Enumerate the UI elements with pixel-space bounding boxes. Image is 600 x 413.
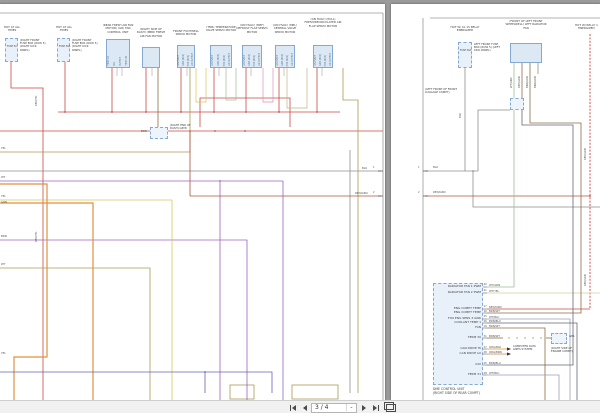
purple-wires (0, 181, 283, 400)
wiring-graphics-right (391, 4, 600, 400)
page-number-input[interactable]: 3 / 4 - (311, 403, 357, 413)
footwell-servo-box: LIN INPUT GND (BUS) POS (BUS) LIN OUTPUT (177, 45, 195, 68)
red-yel-label-2: RED/YEL (36, 224, 39, 242)
dme-wire-2: RED/GRN (489, 306, 502, 309)
dme-pin-8: 27 (484, 346, 487, 349)
red-grn-wire (190, 131, 381, 196)
gps-location-label: (RIGHT SIDE OF ENGINE COMPT) (551, 347, 581, 353)
fuse-box (458, 42, 472, 68)
loop-yellow (196, 68, 206, 102)
edge-label-grn: GRN (1, 201, 7, 204)
relay-hot-label: HOT W/ RELAY 1 ENERGIZED (573, 24, 600, 31)
next-page-icon (362, 405, 366, 411)
previous-page-icon (303, 405, 307, 411)
fan-pin-label-2: RED/GRN (519, 66, 522, 88)
dme-fn-3: ENG COMPT TEMP (435, 311, 481, 314)
dme-pin-5: 26 (484, 320, 487, 323)
orange-wires (0, 184, 93, 400)
dme-pin-2: 17 (484, 305, 487, 308)
edge-label-yel-1: YEL (1, 147, 6, 150)
yellow-wire (0, 200, 172, 400)
loop-pink (263, 68, 273, 102)
can-hi-arrow (507, 347, 511, 350)
relay-wire-label-2: RED/GRN (585, 266, 588, 286)
luggage-connector (510, 98, 524, 110)
defrost-flap-servo-label: (ON HVAC) (MEF) DEFROST FLAP SERVO MOTOR (236, 24, 268, 34)
red-yel-label-1: RED/YEL (36, 88, 39, 106)
loop-green (226, 68, 236, 100)
edge-label-brn: BRN (1, 235, 7, 238)
fuse-box-2 (57, 38, 70, 62)
dme-fn-8: CAN DRIVE HI (435, 347, 481, 350)
gry8-connector (150, 127, 168, 139)
dme-fn-7: TERM 30 (435, 336, 481, 339)
blk-wires (0, 150, 381, 393)
fuse1-location-label: (RIGHT FRONT FUSE BOX (ROW 5) (RIGHT KIC… (20, 39, 46, 52)
dme-wire-6: BRN/WT (489, 325, 500, 328)
edge-label-wt-2: WT (1, 263, 5, 266)
last-page-button[interactable] (371, 403, 381, 412)
dme-fn-0: RADIATOR FAN 1 PWM (435, 285, 481, 288)
dme-pin-3: 16 (484, 310, 487, 313)
relay-wire-label-1: RED/GRN (585, 140, 588, 160)
dme-wire-1: WT/YEL (489, 290, 499, 293)
can-lo-arrow (507, 352, 511, 355)
document-page-left: HOT AT ALL TIMES (RIGHT FRONT FUSE BOX (… (0, 4, 385, 400)
luggage-compt-label: (LEFT FRONT OF FRONT LUGGAGE COMPT) (425, 88, 457, 94)
brn-wire-label: BRN (141, 130, 147, 133)
dme-pin-6: 18 (484, 325, 487, 328)
dme-fn-10: 24V (435, 363, 481, 366)
dme-row-wires (487, 63, 600, 400)
dme-pin-4: 25 (484, 315, 487, 318)
dme-wire-0: WT/GRN (489, 284, 500, 287)
fuse-value: FUSE 30A (460, 50, 472, 53)
dme-wire-10: BRN/BLU (489, 362, 501, 365)
fuse-hot-label: HOT W/ KL 15 RELAY ENERGIZED (449, 26, 481, 33)
edge-label-yel-3: YEL (1, 352, 6, 355)
edge-label-wt-1: WT (1, 176, 5, 179)
dme-wire-11: WT/BLU (489, 372, 499, 375)
pin-stubs (117, 68, 322, 76)
presentation-mode-icon (386, 404, 396, 412)
dme-wire-9: ORG/BRN (489, 351, 502, 354)
edge-label-yel-2: YEL (1, 195, 6, 198)
brn-wire (158, 68, 168, 133)
defrost-flap-servo-box: LIN INPUT GND (BUS) POS (BUS) LIN OUTPUT (242, 45, 262, 68)
edge-pin-1-wire: BLK (433, 166, 438, 169)
fuse2-hot-label: HOT AT ALL TIMES (52, 26, 76, 33)
left-radiator-fan-box (510, 43, 542, 63)
fan-pin-label-3: BRN/GRN (527, 66, 530, 88)
fan-control-unit-label: (REAR FRESH AIR FAN MOTOR) (GR) FAN CONT… (100, 24, 136, 34)
fresh-air-fan-motor-box (142, 47, 160, 68)
dme-wire-4: WT/BLU (489, 316, 499, 319)
red-wires (0, 62, 383, 400)
edge-pin-2-num: 2 (418, 191, 420, 194)
pdf-viewer: HOT AT ALL TIMES (RIGHT FRONT FUSE BOX (… (0, 0, 600, 413)
dme-pin-7: 31 (484, 335, 487, 338)
dme-wire-3: BRN/WT (489, 310, 500, 313)
document-page-right: HOT W/ KL 15 RELAY ENERGIZED LEFT FRONT … (391, 4, 600, 400)
edge-pin-1-num: 1 (373, 166, 375, 169)
dme-fn-5: COOLANT TEMP 1 (435, 321, 481, 324)
dme-fn-11: TERM 31 (435, 373, 481, 376)
temp-valve-servo-box: LIN INPUT GND (BUS) POS (BUS) LIN OUTPUT (210, 45, 232, 68)
first-page-icon (290, 405, 292, 411)
dme-pin-10: 45 (484, 362, 487, 365)
next-page-button[interactable] (360, 403, 368, 412)
dme-caption: DME CONTROL UNIT (RIGHT SIDE OF REAR COM… (433, 388, 493, 395)
edge-pin-2-wire: RED/GRN (433, 191, 446, 194)
edge-pin-2-num: 2 (373, 191, 375, 194)
dme-wire-5: BRN/BLU (489, 320, 501, 323)
gry8-label: (RIGHT END OF DASH) GRY8 (170, 124, 192, 130)
left-radiator-fan-label: (FRONT OF LEFT FRONT WHEELWELL) LEFT RAD… (504, 20, 548, 30)
first-page-button[interactable] (288, 403, 298, 412)
dme-pin-9: 28 (484, 351, 487, 354)
central-valve-servo-label: (ON HVAC) (MEL) CENTRAL VALVE SERVO MOTO… (269, 24, 301, 34)
footwell-servo-label: FRONT FOOTWELL SERVO MOTOR (171, 30, 201, 37)
blue-wires (0, 372, 272, 393)
presentation-mode-button[interactable] (385, 403, 397, 412)
dme-fn-9: CAN DRIVE LO (435, 352, 481, 355)
dme-pin-1: 41 (484, 289, 487, 292)
fan-control-unit-box: TERM 15 SIG OUTPUT TERM 30 (106, 39, 130, 68)
fuse-location-label: LEFT FRONT FUSE BOX (ROW 5) (LEFT KICK P… (474, 43, 500, 53)
dme-control-unit-box (433, 283, 483, 385)
central-valve-servo-box: LIN INPUT GND (BUS) POS (BUS) LIN OUTPUT (275, 45, 295, 68)
edge-pin-1-wire: BLK (362, 167, 367, 170)
fuse2-value: FUSE 30A (59, 46, 71, 49)
dme-pin-11: 48 (484, 372, 487, 375)
edge-pin-ticks (423, 171, 428, 196)
recirc-flap-servo-box: LIN INPUT GND (BUS) POS (BUS) LIN OUTPUT (313, 45, 333, 68)
page-indicator: 3 / 4 (312, 404, 346, 411)
term30-dots (508, 337, 541, 338)
dme-wire-7: BRN/WT (489, 335, 500, 338)
fan-pin-label-1: WT/GRN (511, 66, 514, 88)
edge-pin-2-wire: RED/GRN (355, 192, 368, 195)
dme-fn-1: RADIATOR FAN 2 PWM (435, 291, 481, 294)
last-page-icon (373, 405, 377, 411)
dme-wire-8: ORG/BLK (489, 346, 501, 349)
fuse-box-1 (5, 38, 18, 62)
viewer-toolbar: 3 / 4 - (0, 400, 600, 413)
dme-fn-6: FAN (435, 326, 481, 329)
page-scale-dropdown[interactable]: - (346, 404, 356, 411)
temp-valve-servo-label: (TMR) TEMPERATURE VALVE SERVO MOTOR (204, 26, 238, 33)
fuse1-hot-label: HOT AT ALL TIMES (0, 26, 24, 33)
olive-wires (0, 68, 358, 400)
fresh-air-fan-motor-label: (RIGHT SIDE OF DASH) (MBR) FRESH AIR FAN… (136, 28, 166, 38)
gps-connector (551, 333, 567, 344)
dme-pin-0: 40 (484, 283, 487, 286)
edge-pin-1-num: 1 (418, 166, 420, 169)
fuse1-value: FUSE 5A (7, 46, 19, 49)
fan-pin-label-4: BRN/GRN (535, 66, 538, 88)
can-note-label: COMPUTER DATA LINES SYSTEM (513, 345, 537, 351)
edge-pin-ticks (378, 171, 383, 196)
gps-label: GPS (569, 335, 583, 338)
fuse2-location-label: (RIGHT FRONT FUSE BOX (ROW 5) (RIGHT KIC… (72, 39, 98, 52)
fuse-wire-label: BLK (460, 104, 463, 118)
previous-page-button[interactable] (301, 403, 309, 412)
recirc-flap-servo-label: (ON HVAC) (PULL) FRESH/RECIRCULATED AIR … (303, 18, 343, 28)
